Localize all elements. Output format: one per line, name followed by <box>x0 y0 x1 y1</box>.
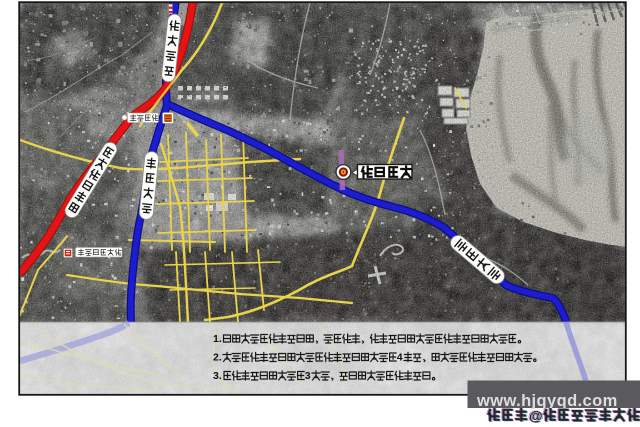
svg-text:www.hjqyqd.com: www.hjqyqd.com <box>476 392 618 410</box>
svg-text:4: 4 <box>397 352 403 364</box>
svg-text:2.: 2. <box>213 352 222 364</box>
svg-text:3.: 3. <box>213 370 222 382</box>
svg-text:@: @ <box>529 408 543 424</box>
svg-text:1.: 1. <box>213 333 222 345</box>
svg-text:3: 3 <box>305 370 311 382</box>
